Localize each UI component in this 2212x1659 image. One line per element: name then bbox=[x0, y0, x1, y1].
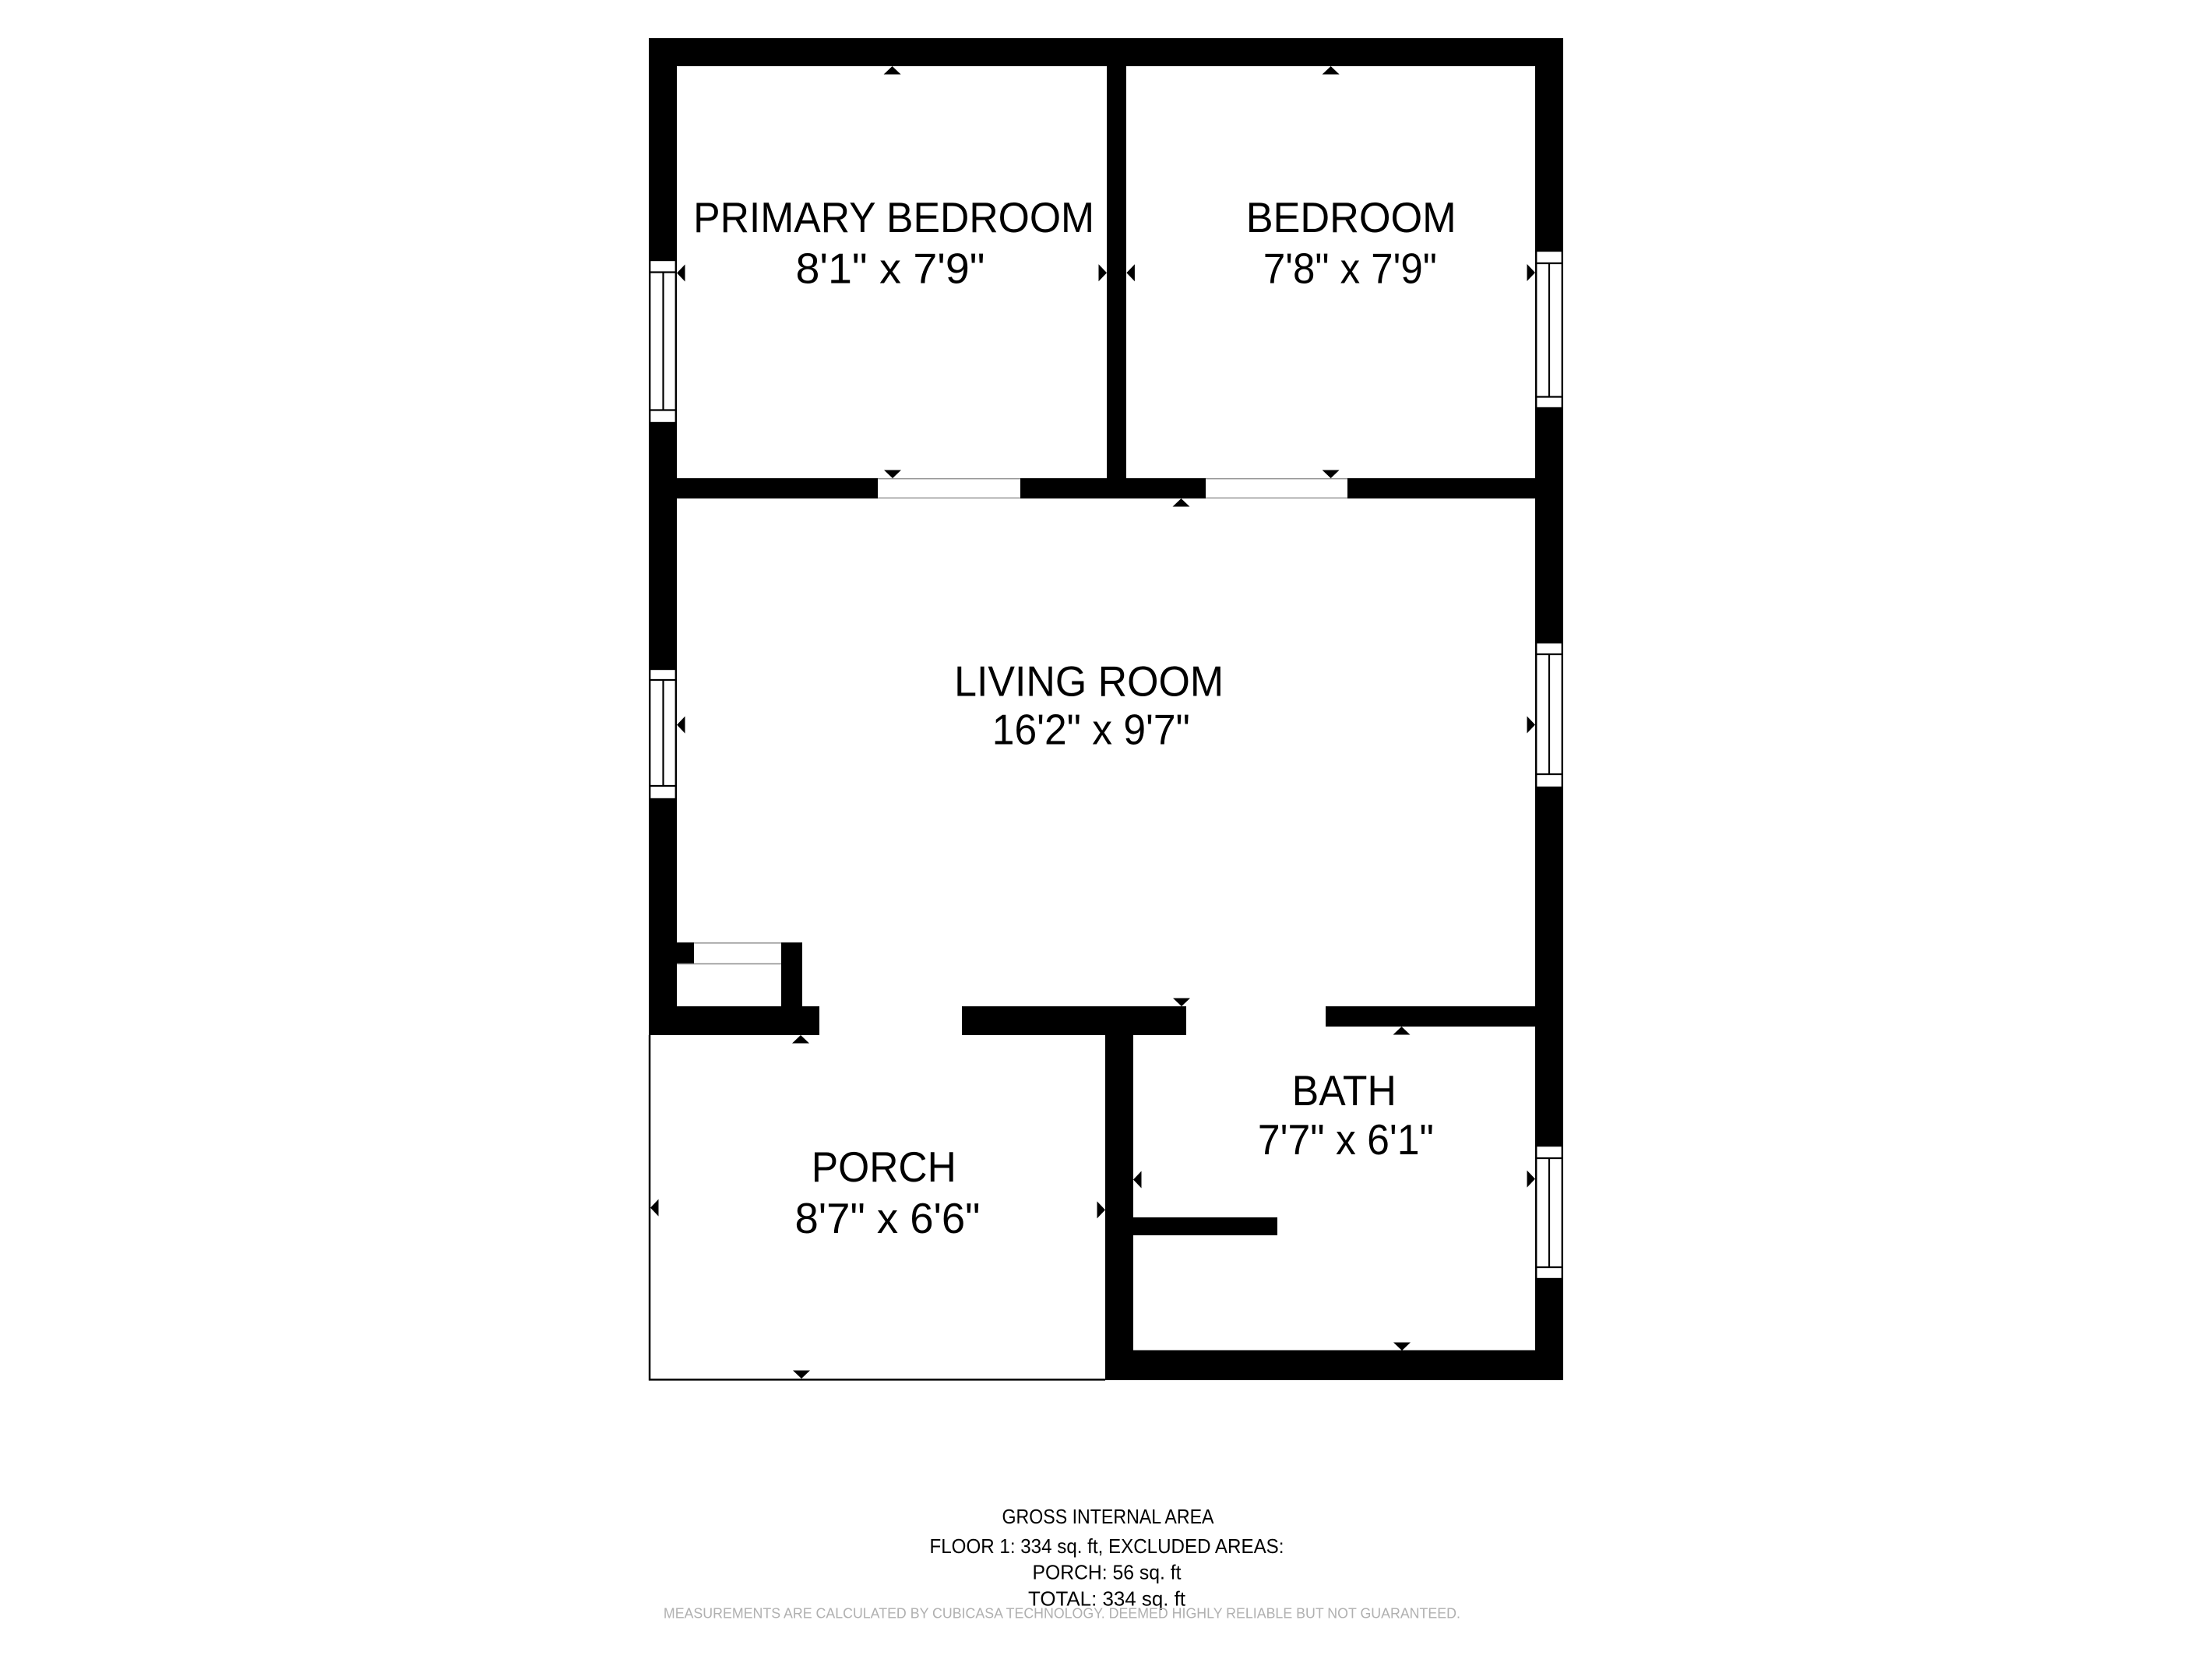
svg-text:GROSS INTERNAL AREA: GROSS INTERNAL AREA bbox=[1002, 1505, 1215, 1528]
svg-text:LIVING ROOM: LIVING ROOM bbox=[954, 657, 1224, 706]
svg-text:PRIMARY BEDROOM: PRIMARY BEDROOM bbox=[693, 193, 1094, 241]
svg-text:FLOOR 1: 334 sq. ft, EXCLUDED: FLOOR 1: 334 sq. ft, EXCLUDED AREAS: bbox=[930, 1534, 1284, 1558]
svg-text:8'1" x 7'9": 8'1" x 7'9" bbox=[796, 245, 985, 293]
svg-text:PORCH: 56 sq. ft: PORCH: 56 sq. ft bbox=[1033, 1561, 1182, 1584]
svg-text:7'7" x 6'1": 7'7" x 6'1" bbox=[1258, 1115, 1434, 1164]
svg-text:BEDROOM: BEDROOM bbox=[1246, 193, 1456, 241]
svg-text:MEASUREMENTS ARE CALCULATED BY: MEASUREMENTS ARE CALCULATED BY CUBICASA … bbox=[664, 1605, 1460, 1622]
svg-text:PORCH: PORCH bbox=[812, 1143, 956, 1191]
svg-text:16'2" x 9'7": 16'2" x 9'7" bbox=[992, 706, 1190, 754]
svg-text:BATH: BATH bbox=[1292, 1066, 1397, 1115]
svg-text:8'7" x 6'6": 8'7" x 6'6" bbox=[795, 1194, 981, 1242]
svg-text:7'8" x 7'9": 7'8" x 7'9" bbox=[1263, 245, 1437, 293]
